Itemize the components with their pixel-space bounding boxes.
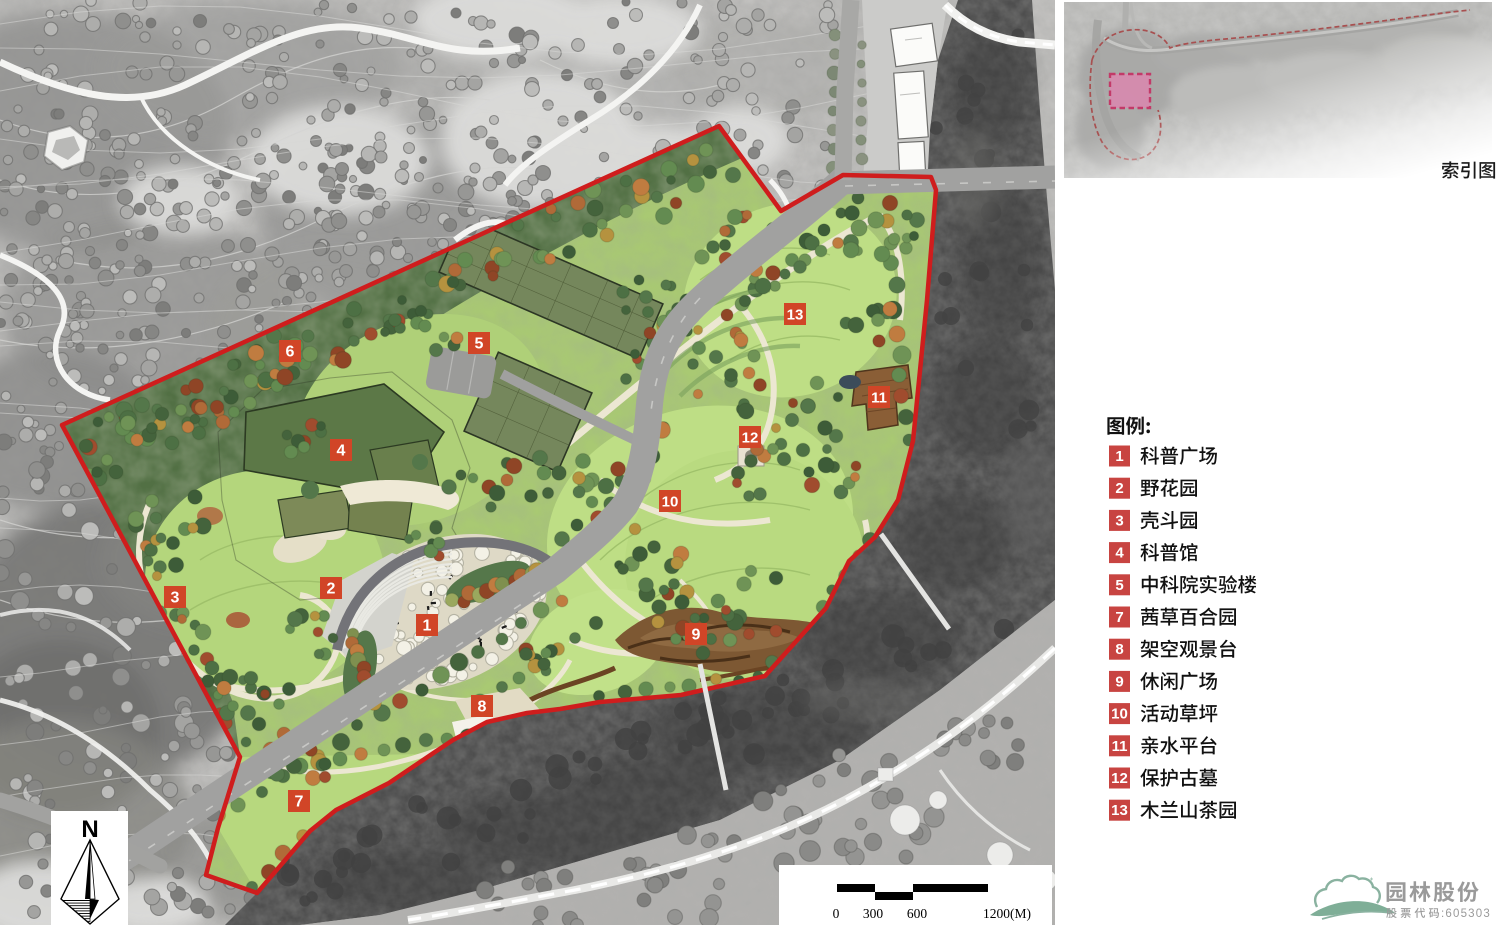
svg-text:1: 1 (1115, 448, 1123, 465)
svg-text:600: 600 (907, 906, 928, 921)
svg-text:0: 0 (833, 906, 840, 921)
svg-text:2: 2 (327, 581, 336, 598)
svg-text::605303: :605303 (1441, 908, 1491, 920)
svg-text:300: 300 (863, 906, 884, 921)
svg-text:12: 12 (1111, 770, 1128, 787)
svg-text:7: 7 (295, 794, 304, 811)
svg-text:12: 12 (742, 430, 759, 447)
svg-text:3: 3 (1115, 512, 1123, 529)
svg-text:6: 6 (286, 344, 295, 361)
svg-text:3: 3 (171, 590, 180, 607)
svg-text:1200(M): 1200(M) (983, 906, 1031, 921)
svg-text:5: 5 (1115, 577, 1123, 594)
svg-text:8: 8 (1115, 641, 1123, 658)
svg-text:8: 8 (478, 699, 487, 716)
svg-text:11: 11 (1112, 738, 1128, 755)
svg-text:13: 13 (787, 307, 804, 324)
svg-text:4: 4 (1115, 545, 1124, 562)
svg-text:13: 13 (1111, 802, 1128, 819)
svg-text:7: 7 (1115, 609, 1123, 626)
svg-text:9: 9 (1115, 673, 1123, 690)
svg-text:1: 1 (423, 618, 432, 635)
svg-text:10: 10 (662, 494, 679, 511)
svg-text:5: 5 (475, 336, 484, 353)
svg-text:9: 9 (692, 627, 701, 644)
svg-text:2: 2 (1115, 480, 1123, 497)
svg-text:4: 4 (337, 443, 346, 460)
svg-text:11: 11 (871, 390, 887, 407)
svg-text:10: 10 (1111, 706, 1128, 723)
